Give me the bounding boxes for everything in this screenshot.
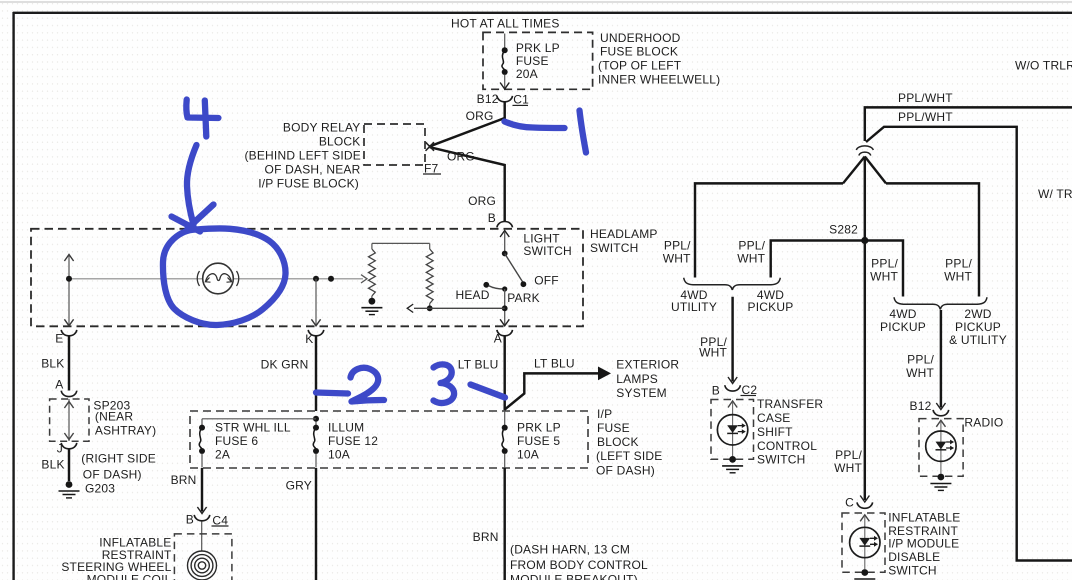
svg-text:INFLATABLE: INFLATABLE <box>888 511 960 525</box>
svg-text:K: K <box>305 332 313 346</box>
svg-text:FUSE 5: FUSE 5 <box>517 434 560 448</box>
svg-text:PPL/: PPL/ <box>835 448 862 462</box>
svg-text:BRN: BRN <box>171 473 197 487</box>
svg-text:(LEFT SIDE: (LEFT SIDE <box>596 449 662 463</box>
svg-text:SWITCH: SWITCH <box>590 241 639 255</box>
svg-text:FUSE 12: FUSE 12 <box>328 434 378 448</box>
svg-text:WHT: WHT <box>699 346 727 360</box>
svg-text:FROM BODY CONTROL: FROM BODY CONTROL <box>510 558 648 572</box>
svg-text:MODULE BREAKOUT): MODULE BREAKOUT) <box>510 573 638 580</box>
svg-text:ASHTRAY): ASHTRAY) <box>95 424 156 438</box>
svg-text:W/ TRLR TOW: W/ TRLR TOW <box>1038 187 1072 201</box>
svg-text:PPL/: PPL/ <box>907 352 934 366</box>
svg-text:PICKUP: PICKUP <box>880 320 926 334</box>
svg-text:FUSE: FUSE <box>516 54 549 68</box>
svg-text:OF DASH, NEAR: OF DASH, NEAR <box>265 163 361 177</box>
svg-text:MODULE COIL: MODULE COIL <box>87 573 172 580</box>
svg-text:BLOCK: BLOCK <box>319 135 361 149</box>
svg-text:SWITCH: SWITCH <box>888 564 937 578</box>
svg-text:B: B <box>488 211 496 225</box>
svg-text:PRK LP: PRK LP <box>517 421 561 435</box>
svg-text:SYSTEM: SYSTEM <box>616 386 667 400</box>
svg-text:PICKUP: PICKUP <box>748 300 794 314</box>
svg-text:WHT: WHT <box>834 461 862 475</box>
svg-text:PARK: PARK <box>507 291 540 305</box>
svg-text:LT BLU: LT BLU <box>534 357 575 371</box>
svg-text:2A: 2A <box>215 448 230 462</box>
svg-text:B: B <box>712 384 720 398</box>
svg-text:ILLUM: ILLUM <box>328 421 364 435</box>
svg-text:OF DASH): OF DASH) <box>83 468 142 482</box>
svg-text:SHIFT: SHIFT <box>757 425 793 439</box>
svg-text:UNDERHOOD: UNDERHOOD <box>600 31 681 45</box>
svg-text:ORG: ORG <box>468 194 496 208</box>
svg-text:I/P FUSE BLOCK): I/P FUSE BLOCK) <box>258 177 359 191</box>
svg-text:C1: C1 <box>513 93 529 107</box>
svg-text:PPL/WHT: PPL/WHT <box>898 110 953 124</box>
svg-text:B: B <box>186 513 194 527</box>
svg-text:RADIO: RADIO <box>964 416 1003 430</box>
svg-text:SWITCH: SWITCH <box>757 453 806 467</box>
svg-text:(RIGHT SIDE: (RIGHT SIDE <box>81 452 156 466</box>
svg-text:PPL/: PPL/ <box>664 239 691 253</box>
svg-text:BRN: BRN <box>473 530 499 544</box>
svg-text:PPL/WHT: PPL/WHT <box>898 91 953 105</box>
svg-text:HOT AT ALL TIMES: HOT AT ALL TIMES <box>451 17 560 31</box>
svg-text:INNER WHEELWELL): INNER WHEELWELL) <box>598 73 720 87</box>
svg-text:& UTILITY: & UTILITY <box>949 333 1007 347</box>
svg-text:E: E <box>55 332 63 346</box>
svg-text:DISABLE: DISABLE <box>888 550 940 564</box>
svg-text:A: A <box>55 378 63 392</box>
svg-text:DK GRN: DK GRN <box>261 358 309 372</box>
svg-text:(BEHIND LEFT SIDE: (BEHIND LEFT SIDE <box>244 149 361 163</box>
svg-text:FUSE: FUSE <box>597 421 630 435</box>
svg-text:2WD: 2WD <box>964 307 991 321</box>
svg-text:20A: 20A <box>516 67 538 81</box>
svg-text:BLK: BLK <box>41 458 64 472</box>
svg-text:WHT: WHT <box>906 366 934 380</box>
svg-text:OF DASH): OF DASH) <box>596 464 655 478</box>
svg-text:SWITCH: SWITCH <box>523 244 572 258</box>
svg-text:4WD: 4WD <box>889 307 916 321</box>
svg-text:ORG: ORG <box>447 150 475 164</box>
svg-text:ORG: ORG <box>466 109 494 123</box>
svg-text:PPL/: PPL/ <box>945 257 972 271</box>
svg-text:G203: G203 <box>85 482 115 496</box>
svg-text:CONTROL: CONTROL <box>757 439 817 453</box>
svg-text:WHT: WHT <box>737 252 765 266</box>
svg-text:WHT: WHT <box>870 270 898 284</box>
svg-text:I/P: I/P <box>597 407 612 421</box>
svg-text:LAMPS: LAMPS <box>616 372 658 386</box>
svg-text:WHT: WHT <box>944 270 972 284</box>
svg-text:PPL/: PPL/ <box>738 239 765 253</box>
svg-text:BLK: BLK <box>41 357 64 371</box>
svg-text:10A: 10A <box>328 448 350 462</box>
svg-text:PRK LP: PRK LP <box>516 41 560 55</box>
svg-text:FUSE 6: FUSE 6 <box>215 434 258 448</box>
svg-text:TRANSFER: TRANSFER <box>757 397 823 411</box>
svg-text:(DASH HARN, 13 CM: (DASH HARN, 13 CM <box>510 543 630 557</box>
svg-text:PPL/: PPL/ <box>871 257 898 271</box>
svg-text:EXTERIOR: EXTERIOR <box>616 357 679 371</box>
svg-text:10A: 10A <box>517 448 539 462</box>
svg-text:C: C <box>845 495 854 509</box>
svg-text:A: A <box>494 332 502 346</box>
svg-text:HEADLAMP: HEADLAMP <box>590 227 658 241</box>
svg-text:HEAD: HEAD <box>455 288 489 302</box>
svg-text:(TOP OF LEFT: (TOP OF LEFT <box>598 59 682 73</box>
svg-text:J: J <box>57 442 63 456</box>
svg-text:WHT: WHT <box>663 252 691 266</box>
svg-text:BODY RELAY: BODY RELAY <box>283 121 361 135</box>
svg-text:B12: B12 <box>477 92 499 106</box>
svg-text:CASE: CASE <box>757 411 790 425</box>
svg-text:BLOCK: BLOCK <box>597 435 639 449</box>
svg-text:LT BLU: LT BLU <box>458 358 499 372</box>
svg-text:GRY: GRY <box>286 479 312 493</box>
svg-text:OFF: OFF <box>534 274 559 288</box>
svg-text:I/P MODULE: I/P MODULE <box>888 537 959 551</box>
svg-text:W/O TRLR TOW: W/O TRLR TOW <box>1015 58 1072 72</box>
svg-text:S282: S282 <box>829 223 858 237</box>
svg-text:UTILITY: UTILITY <box>671 300 717 314</box>
svg-text:(NEAR: (NEAR <box>95 409 133 423</box>
svg-text:FUSE BLOCK: FUSE BLOCK <box>600 45 678 59</box>
svg-text:B12: B12 <box>910 399 932 413</box>
svg-text:STR WHL ILL: STR WHL ILL <box>215 421 291 435</box>
